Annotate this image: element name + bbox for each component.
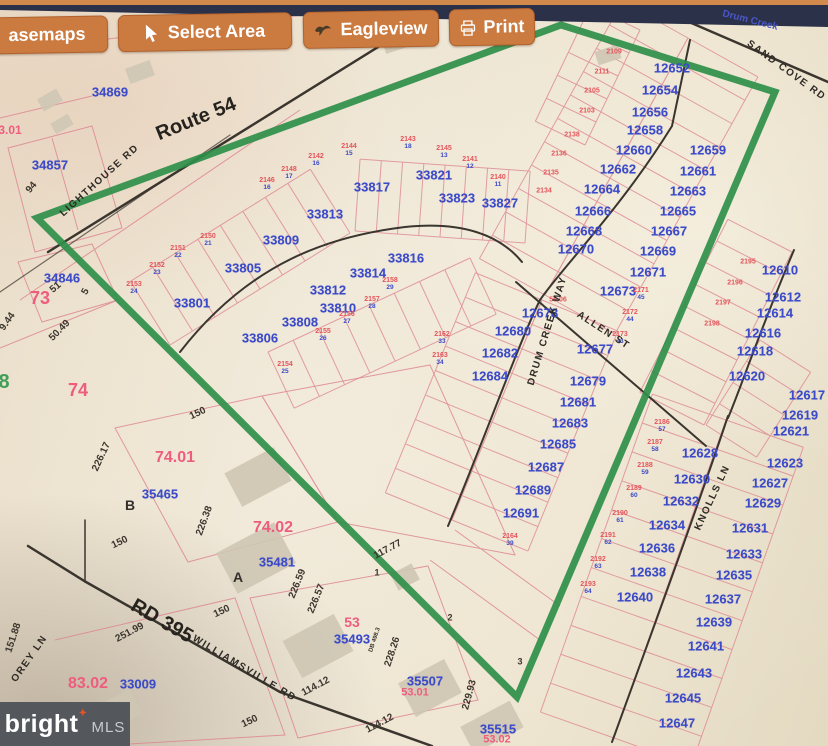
lot-label: 2135 <box>543 170 559 177</box>
parcel-label: 12679 <box>570 375 606 388</box>
lot-label: 2196 <box>727 280 743 287</box>
eagleview-button[interactable]: Eagleview <box>303 10 440 49</box>
parcel-label: 12630 <box>674 473 710 486</box>
road-label: DRUM CREEK WAY <box>527 275 570 386</box>
lot-label: 214318 <box>400 136 416 151</box>
lot-label: 215324 <box>126 281 142 296</box>
parcel-label: 12673 <box>600 285 636 298</box>
parcel-label: 12658 <box>627 124 663 137</box>
dimension-label: 251.99 <box>114 621 146 644</box>
parcel-label: 33805 <box>225 262 261 275</box>
lot-label: 215829 <box>382 277 398 292</box>
dimension-label: 228.26 <box>384 636 403 668</box>
lot-label: 215122 <box>170 245 186 260</box>
dimension-label: 226.59 <box>288 568 309 600</box>
lot-label: 214513 <box>436 145 452 160</box>
lot-label: 219364 <box>580 581 596 596</box>
lot-label: 2197 <box>715 300 731 307</box>
parcel-label: 12620 <box>729 370 765 383</box>
section-label: 53.02 <box>483 735 511 746</box>
star-icon: ✦ <box>79 708 88 719</box>
parcel-label: 12661 <box>680 165 716 178</box>
dimension-label: 94 <box>25 181 40 196</box>
dimension-label: 229.93 <box>461 679 479 711</box>
lot-label: 2136 <box>551 151 567 158</box>
dimension-label: 3 <box>517 658 522 667</box>
road-label: Route 54 <box>153 94 239 144</box>
parcel-label: 12612 <box>765 291 801 304</box>
lot-label: 218657 <box>654 419 670 434</box>
dimension-label: 150 <box>240 714 259 730</box>
parcel-label: 12687 <box>528 461 564 474</box>
parcel-label: 12667 <box>651 225 687 238</box>
lot-label: 2109 <box>606 49 622 56</box>
parcel-label: 33809 <box>263 234 299 247</box>
parcel-label: 12636 <box>639 542 675 555</box>
dimension-label: 50.49 <box>48 319 73 344</box>
parcel-label: 34857 <box>32 159 68 172</box>
parcel-label: 12683 <box>552 417 588 430</box>
select-area-button-label: Select Area <box>168 21 266 44</box>
parcel-label: 12669 <box>640 245 676 258</box>
lot-label: 2111 <box>595 69 610 76</box>
dimension-label: 114.12 <box>300 676 331 699</box>
parcel-label: 12680 <box>495 325 531 338</box>
lot-label: 214817 <box>281 166 297 181</box>
section-label: 74 <box>68 381 88 399</box>
lot-label: 214011 <box>490 174 506 189</box>
lot-label: 219162 <box>600 532 616 547</box>
parcel-label: 12670 <box>558 243 594 256</box>
section-label: 74.01 <box>155 450 195 466</box>
parcel-label: 12659 <box>690 144 726 157</box>
lot-label: 215425 <box>277 361 293 376</box>
parcel-label: 12628 <box>682 447 718 460</box>
lot-label: 219263 <box>590 556 606 571</box>
parcel-label: 33827 <box>482 197 518 210</box>
lot-label: 2195 <box>740 259 756 266</box>
parcel-label: 12682 <box>482 347 518 360</box>
lot-label: 217145 <box>633 287 649 302</box>
dimension-label: 150 <box>188 406 207 422</box>
map-labels-layer: 3486934857348463380133805338093381333817… <box>0 0 828 746</box>
misc-label: 8 <box>0 372 10 392</box>
parcel-label: 33801 <box>174 297 210 310</box>
section-label: 3.01 <box>0 124 22 136</box>
dimension-label: 117.77 <box>372 539 403 562</box>
parcel-label: 12640 <box>617 591 653 604</box>
basemaps-button[interactable]: asemaps <box>0 15 108 54</box>
road-label: SAND COVE RD <box>745 39 827 103</box>
parcel-label: 12627 <box>752 477 788 490</box>
parcel-label: 34846 <box>44 272 80 285</box>
lot-label: 2105 <box>584 88 600 95</box>
lot-label: 2103 <box>579 108 595 115</box>
parcel-label: 33806 <box>242 332 278 345</box>
lot-label: 218859 <box>637 462 653 477</box>
parcel-label: 33813 <box>307 208 343 221</box>
parcel-label: 12641 <box>688 640 724 653</box>
dimension-label: 5 <box>80 287 91 297</box>
dimension-label: 226.57 <box>307 583 328 615</box>
lot-label: 215526 <box>315 328 331 343</box>
parcel-label: 12629 <box>745 497 781 510</box>
parcel-label: 12652 <box>654 62 690 75</box>
parcel-label: 12614 <box>757 307 793 320</box>
dimension-label: 226.38 <box>195 505 215 537</box>
lot-label: 215627 <box>339 311 355 326</box>
section-label: 83.02 <box>68 676 108 692</box>
parcel-label: 33808 <box>282 316 318 329</box>
lot-label: 216334 <box>432 352 448 367</box>
parcel-label: 12671 <box>630 266 666 279</box>
block-letter-label: B <box>125 498 135 512</box>
select-area-button[interactable]: Select Area <box>118 12 293 52</box>
dimension-label: 2 <box>447 614 452 623</box>
lot-label: 2198 <box>704 321 720 328</box>
parcel-label: 35481 <box>259 556 295 569</box>
parcel-label: 12691 <box>503 507 539 520</box>
parcel-label: 12621 <box>773 425 809 438</box>
parcel-label: 12685 <box>540 438 576 451</box>
lot-label: 217244 <box>622 309 638 324</box>
parcel-label: 12664 <box>584 183 620 196</box>
parcel-label: 12677 <box>577 343 613 356</box>
parcel-label: 12617 <box>789 389 825 402</box>
parcel-label: 33812 <box>310 284 346 297</box>
lot-label: 215728 <box>364 296 380 311</box>
parcel-label: 35493 <box>334 633 370 646</box>
printer-icon <box>459 19 475 35</box>
parcel-label: 12656 <box>632 106 668 119</box>
dimension-label: 150 <box>110 535 129 551</box>
lot-label: 218960 <box>626 485 642 500</box>
lot-label: 214616 <box>259 177 275 192</box>
lot-label: 2134 <box>536 188 552 195</box>
eagleview-button-label: Eagleview <box>340 18 427 41</box>
parcel-label: 12668 <box>566 225 602 238</box>
parcel-label: 12610 <box>762 264 798 277</box>
lot-label: 216233 <box>434 331 450 346</box>
parcel-label: 12666 <box>575 205 611 218</box>
parcel-label: 34869 <box>92 86 128 99</box>
lot-label: 2138 <box>564 132 580 139</box>
dimension-label: 150 <box>212 604 231 620</box>
lot-label: 216439 <box>502 533 518 548</box>
dimension-label: 9.44 <box>0 311 18 333</box>
parcel-label: 33823 <box>439 192 475 205</box>
road-label: LIGHTHOUSE RD <box>59 143 142 219</box>
lot-label: 218758 <box>647 439 663 454</box>
parcel-label: 12616 <box>745 327 781 340</box>
parcel-label: 12634 <box>649 519 685 532</box>
brand-suffix: MLS <box>91 719 125 736</box>
parcel-label: 12665 <box>660 205 696 218</box>
parcel-label: 12684 <box>472 370 508 383</box>
parcel-label: 12633 <box>726 548 762 561</box>
parcel-label: 12623 <box>767 457 803 470</box>
parcel-label: 12639 <box>696 616 732 629</box>
lot-label: 219061 <box>612 510 628 525</box>
parcel-label: 12631 <box>732 522 768 535</box>
parcel-label: 12662 <box>600 163 636 176</box>
dimension-label: 226.17 <box>91 441 113 473</box>
dimension-label: DB 498.3 <box>368 627 382 653</box>
parcel-label: 12647 <box>659 717 695 730</box>
basemaps-button-label: asemaps <box>8 24 85 46</box>
map-viewer-window: 3486934857348463380133805338093381333817… <box>0 0 828 746</box>
brand-text: bright✦ <box>5 710 79 739</box>
lot-label: 215223 <box>149 262 165 277</box>
bright-mls-watermark: bright✦ MLS <box>0 702 130 746</box>
parcel-label: 12632 <box>663 495 699 508</box>
parcel-label: 33821 <box>416 169 452 182</box>
lot-label: 214415 <box>341 143 357 158</box>
eagle-icon <box>314 23 332 37</box>
lot-label: 215021 <box>200 233 216 248</box>
section-label: 73 <box>30 289 50 307</box>
parcel-label: 12619 <box>782 409 818 422</box>
parcel-label: 33814 <box>350 267 386 280</box>
section-label: 53 <box>344 615 360 629</box>
parcel-label: 33009 <box>120 678 156 691</box>
parcel-label: 12637 <box>705 593 741 606</box>
section-label: 53.01 <box>401 688 429 699</box>
block-letter-label: A <box>233 570 243 584</box>
lot-label: 214112 <box>462 156 478 171</box>
parcel-label: 12645 <box>665 692 701 705</box>
parcel-label: 12681 <box>560 396 596 409</box>
parcel-label: 33817 <box>354 181 390 194</box>
dimension-label: 151.88 <box>5 622 24 654</box>
section-label: 74.02 <box>253 520 293 536</box>
parcel-label: 33816 <box>388 252 424 265</box>
print-button-label: Print <box>483 16 524 38</box>
road-label: WILLIAMSVILLE RD <box>190 634 297 704</box>
parcel-label: 12660 <box>616 144 652 157</box>
dimension-label: 114.12 <box>364 713 395 736</box>
parcel-label: 12635 <box>716 569 752 582</box>
parcel-label: 35465 <box>142 488 178 501</box>
parcel-label: 12689 <box>515 484 551 497</box>
lot-label: 214216 <box>308 153 324 168</box>
parcel-label: 12663 <box>670 185 706 198</box>
parcel-label: 12638 <box>630 566 666 579</box>
print-button[interactable]: Print <box>449 8 536 46</box>
parcel-label: 12643 <box>676 667 712 680</box>
parcel-label: 12654 <box>642 84 678 97</box>
dimension-label: 1 <box>374 569 379 578</box>
cursor-icon <box>145 24 160 42</box>
parcel-label: 12618 <box>737 345 773 358</box>
